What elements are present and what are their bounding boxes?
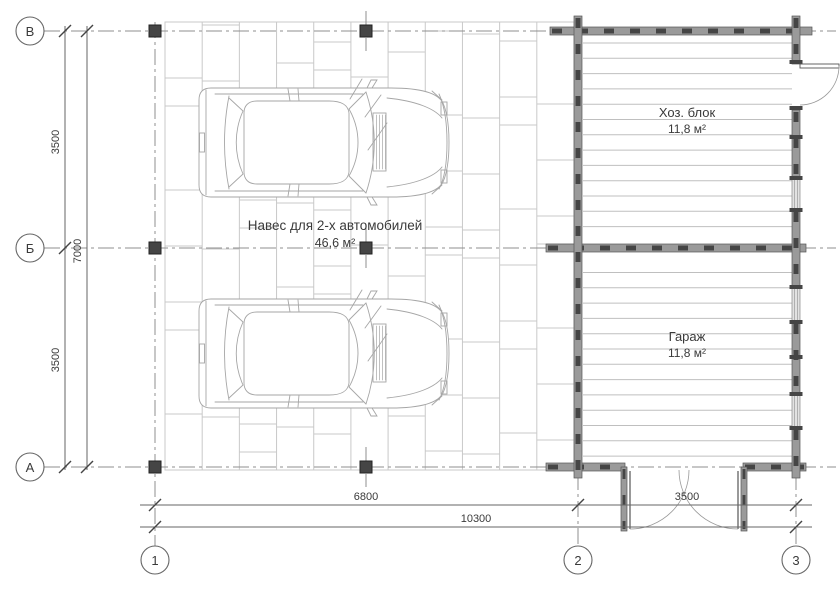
axis-label-row-1: Б <box>26 241 35 256</box>
canopy-column <box>149 25 161 37</box>
canopy-column <box>360 242 372 254</box>
canopy-column <box>149 242 161 254</box>
axis-label-row-0: В <box>26 24 35 39</box>
canopy-area: 46,6 м² <box>315 236 356 250</box>
floor-plan-drawing: 3500 7000 3500 6800 3500 10300 В Б А 1 2… <box>0 0 840 593</box>
axis-label-col-1: 2 <box>574 553 581 568</box>
canopy-column <box>360 461 372 473</box>
canopy-column <box>360 25 372 37</box>
car-top-view-1 <box>199 79 449 205</box>
walls <box>546 16 812 531</box>
floor-plan-page: 3500 7000 3500 6800 3500 10300 В Б А 1 2… <box>0 0 840 593</box>
utility-door-swing-arc <box>800 66 839 105</box>
canopy-column <box>149 461 161 473</box>
car-top-view-2 <box>199 290 449 416</box>
window <box>792 394 800 428</box>
axis-centerlines <box>44 11 836 546</box>
window <box>792 287 800 322</box>
room-area-utility: 11,8 м² <box>668 122 706 136</box>
dim-left-lower: 3500 <box>50 348 62 372</box>
dim-bottom-total: 10300 <box>461 513 492 525</box>
axis-label-row-2: А <box>26 460 35 475</box>
room-area-garage: 11,8 м² <box>668 346 706 360</box>
dim-left-total: 7000 <box>72 239 84 263</box>
utility-door-leaf <box>800 64 839 68</box>
room-name-garage: Гараж <box>669 329 706 344</box>
dim-bottom-right-span: 3500 <box>675 491 699 503</box>
axis-label-col-0: 1 <box>151 553 158 568</box>
window <box>792 178 800 210</box>
room-name-utility: Хоз. блок <box>659 105 716 120</box>
axis-label-col-2: 3 <box>792 553 799 568</box>
doors <box>630 64 839 529</box>
canopy-title: Навес для 2-х автомобилей <box>248 218 423 233</box>
dim-left-upper: 3500 <box>50 130 62 154</box>
dim-bottom-left-span: 6800 <box>354 491 378 503</box>
